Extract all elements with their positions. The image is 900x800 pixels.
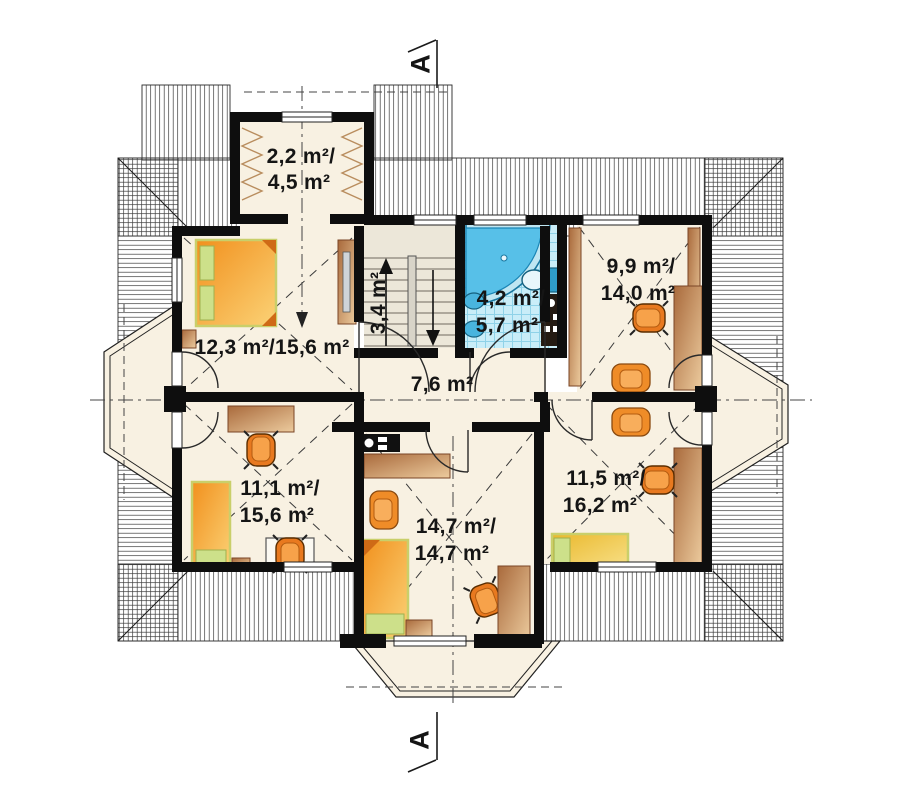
desk bbox=[498, 566, 530, 642]
window bbox=[583, 215, 639, 225]
stairs-handrail bbox=[408, 256, 416, 346]
label-bedroom-left: 12,3 m²/15,6 m² bbox=[194, 336, 349, 360]
label-room-bottom-middle-line2: 14,7 m² bbox=[415, 542, 489, 566]
roof-dormer-flank-right bbox=[374, 85, 452, 160]
section-marker-a-top: A bbox=[406, 54, 437, 74]
label-room-bottom-right-line1: 11,5 m²/ bbox=[566, 467, 645, 491]
armchair bbox=[612, 408, 650, 436]
window bbox=[172, 258, 182, 302]
bed-double bbox=[196, 240, 276, 326]
armchair bbox=[370, 491, 398, 529]
dresser bbox=[406, 620, 432, 636]
label-room-top-right-line2: 14,0 m² bbox=[601, 282, 675, 306]
label-room-bottom-left-line2: 15,6 m² bbox=[240, 504, 314, 528]
desk bbox=[228, 406, 294, 432]
label-bathroom-line1: 4,2 m²/ bbox=[477, 287, 546, 311]
label-dormer-line2: 4,5 m² bbox=[268, 171, 331, 195]
window bbox=[414, 215, 456, 225]
knee-wardrobe bbox=[569, 228, 581, 386]
window bbox=[394, 636, 466, 646]
roof-dormer-flank-left bbox=[142, 85, 230, 160]
window bbox=[282, 112, 332, 122]
desk bbox=[674, 448, 702, 566]
bed-single bbox=[192, 482, 230, 570]
window bbox=[284, 562, 332, 572]
window bbox=[474, 215, 526, 225]
label-room-top-right-line1: 9,9 m²/ bbox=[607, 255, 676, 279]
label-hallway: 7,6 m² bbox=[411, 373, 474, 397]
window bbox=[598, 562, 656, 572]
bed-single bbox=[362, 540, 408, 638]
armchair bbox=[612, 364, 650, 392]
tv-shelf bbox=[360, 434, 400, 452]
label-room-bottom-left-line1: 11,1 m²/ bbox=[240, 477, 319, 501]
floor-plan-page: 2,2 m²/ 4,5 m² 12,3 m²/15,6 m² 3,4 m² 4,… bbox=[0, 0, 900, 800]
section-marker-a-bottom: A bbox=[405, 730, 436, 750]
label-room-bottom-right-line2: 16,2 m² bbox=[563, 494, 637, 518]
label-room-bottom-middle-line1: 14,7 m²/ bbox=[416, 515, 497, 539]
desk bbox=[674, 286, 702, 390]
label-dormer-line1: 2,2 m²/ bbox=[267, 145, 336, 169]
label-stairs: 3,4 m² bbox=[367, 272, 391, 335]
label-bathroom-line2: 5,7 m² bbox=[476, 314, 539, 338]
floor-plan-drawing bbox=[0, 0, 900, 800]
